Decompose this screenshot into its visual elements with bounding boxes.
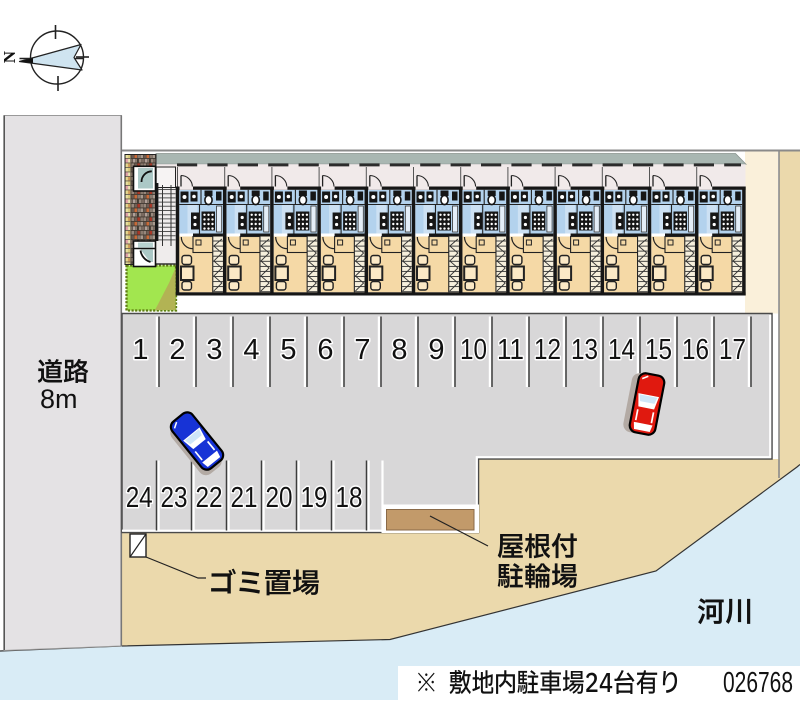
svg-text:13: 13 [571, 334, 598, 366]
svg-text:14: 14 [608, 334, 635, 366]
svg-text:20: 20 [266, 482, 293, 514]
svg-text:2: 2 [169, 334, 185, 366]
svg-text:8: 8 [391, 334, 407, 366]
svg-text:12: 12 [534, 334, 561, 366]
svg-text:1: 1 [132, 334, 148, 366]
svg-text:22: 22 [196, 482, 223, 514]
svg-text:21: 21 [231, 482, 258, 514]
svg-text:6: 6 [317, 334, 333, 366]
svg-text:11: 11 [497, 334, 524, 366]
svg-text:8m: 8m [40, 384, 78, 414]
svg-text:7: 7 [354, 334, 370, 366]
svg-text:23: 23 [161, 482, 188, 514]
svg-text:16: 16 [682, 334, 709, 366]
svg-text:18: 18 [336, 482, 363, 514]
svg-text:10: 10 [460, 334, 487, 366]
svg-text:17: 17 [719, 334, 746, 366]
svg-text:9: 9 [428, 334, 444, 366]
svg-text:4: 4 [243, 334, 259, 366]
svg-text:N: N [0, 50, 19, 63]
svg-text:24: 24 [126, 482, 153, 514]
svg-text:15: 15 [645, 334, 672, 366]
svg-text:3: 3 [206, 334, 222, 366]
svg-text:5: 5 [280, 334, 296, 366]
svg-text:19: 19 [301, 482, 328, 514]
svg-text:026768: 026768 [723, 667, 793, 699]
